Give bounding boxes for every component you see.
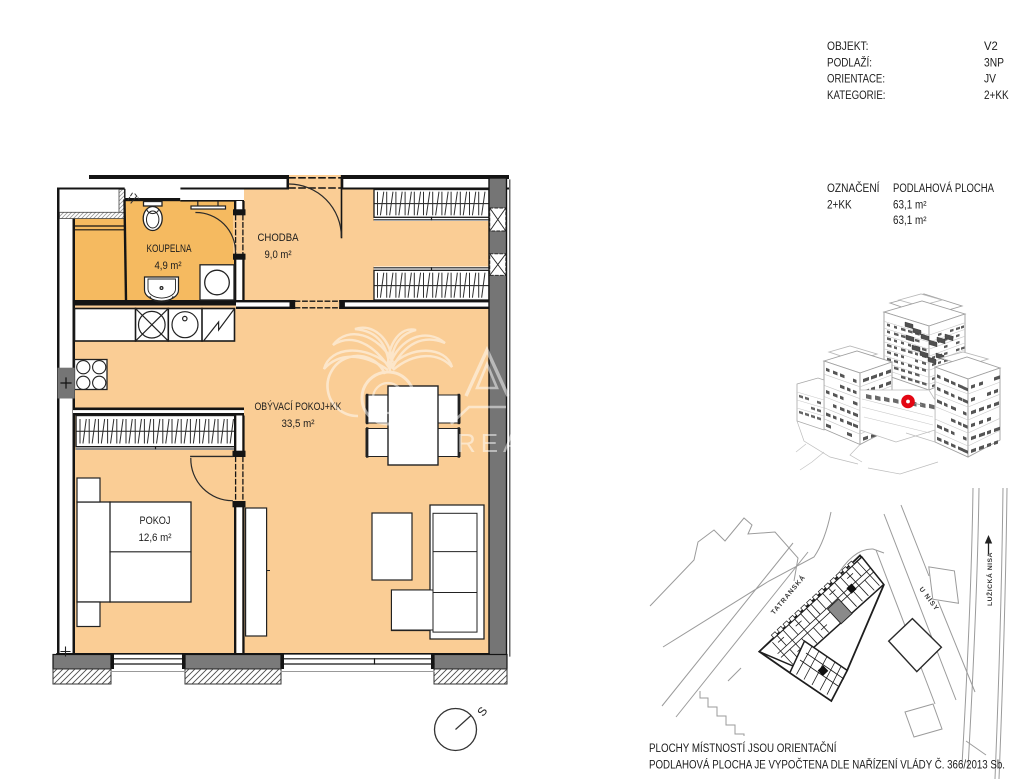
svg-text:PODLAHOVÁ PLOCHA: PODLAHOVÁ PLOCHA bbox=[893, 182, 994, 195]
svg-text:2+KK: 2+KK bbox=[984, 90, 1009, 102]
svg-text:PLOCHY MÍSTNOSTÍ JSOU ORIENTAČ: PLOCHY MÍSTNOSTÍ JSOU ORIENTAČNÍ bbox=[649, 742, 837, 755]
svg-text:PODLAHOVÁ PLOCHA JE VYPOČTENA: PODLAHOVÁ PLOCHA JE VYPOČTENA DLE NAŘÍZE… bbox=[649, 759, 1005, 772]
svg-text:OBJEKT:: OBJEKT: bbox=[827, 41, 869, 53]
svg-text:3NP: 3NP bbox=[984, 58, 1004, 70]
svg-text:POKOJ: POKOJ bbox=[140, 515, 171, 527]
svg-text:ORIENTACE:: ORIENTACE: bbox=[827, 74, 885, 86]
svg-text:63,1 m²: 63,1 m² bbox=[893, 215, 927, 227]
svg-text:JV: JV bbox=[984, 74, 996, 86]
svg-text:4,9 m²: 4,9 m² bbox=[155, 260, 182, 272]
svg-text:OZNAČENÍ: OZNAČENÍ bbox=[827, 182, 880, 195]
svg-text:63,1 m²: 63,1 m² bbox=[893, 200, 927, 212]
svg-text:2+KK: 2+KK bbox=[827, 200, 852, 212]
svg-text:9,0 m²: 9,0 m² bbox=[265, 249, 292, 261]
svg-text:OBÝVACÍ POKOJ+KK: OBÝVACÍ POKOJ+KK bbox=[255, 400, 343, 413]
svg-text:KATEGORIE:: KATEGORIE: bbox=[827, 90, 886, 102]
svg-text:LUŽICKÁ NISA: LUŽICKÁ NISA bbox=[985, 552, 994, 606]
svg-text:PODLAŽÍ:: PODLAŽÍ: bbox=[827, 57, 872, 70]
svg-text:REA: REA bbox=[457, 428, 525, 458]
svg-text:33,5 m²: 33,5 m² bbox=[282, 418, 315, 430]
svg-text:12,6 m²: 12,6 m² bbox=[139, 532, 172, 544]
svg-text:KOUPELNA: KOUPELNA bbox=[147, 243, 192, 255]
svg-text:CHODBA: CHODBA bbox=[258, 232, 300, 244]
svg-text:V2: V2 bbox=[984, 41, 998, 53]
